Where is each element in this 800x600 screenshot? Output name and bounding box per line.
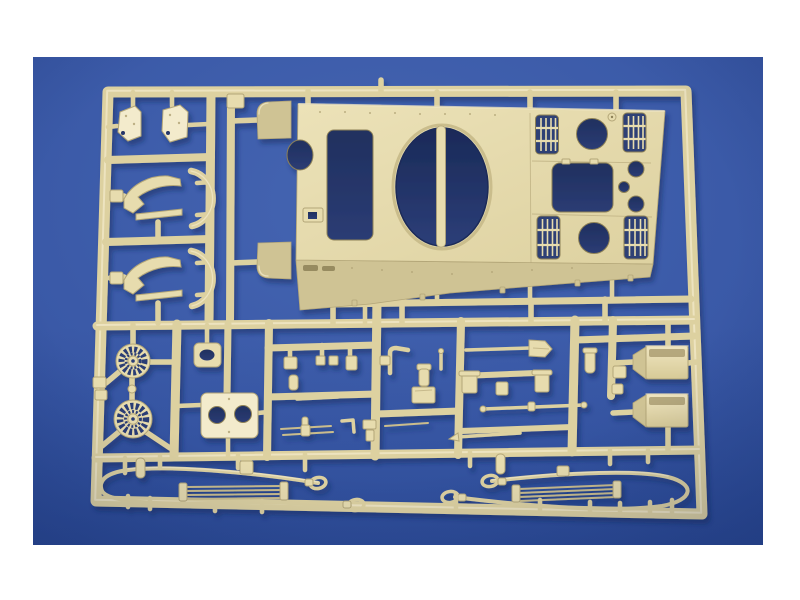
- photo-mat: Tan plastic model-kit sprue with tank up…: [0, 0, 800, 600]
- vignette-overlay: [33, 57, 763, 545]
- sprue-photo-svg: [0, 0, 800, 600]
